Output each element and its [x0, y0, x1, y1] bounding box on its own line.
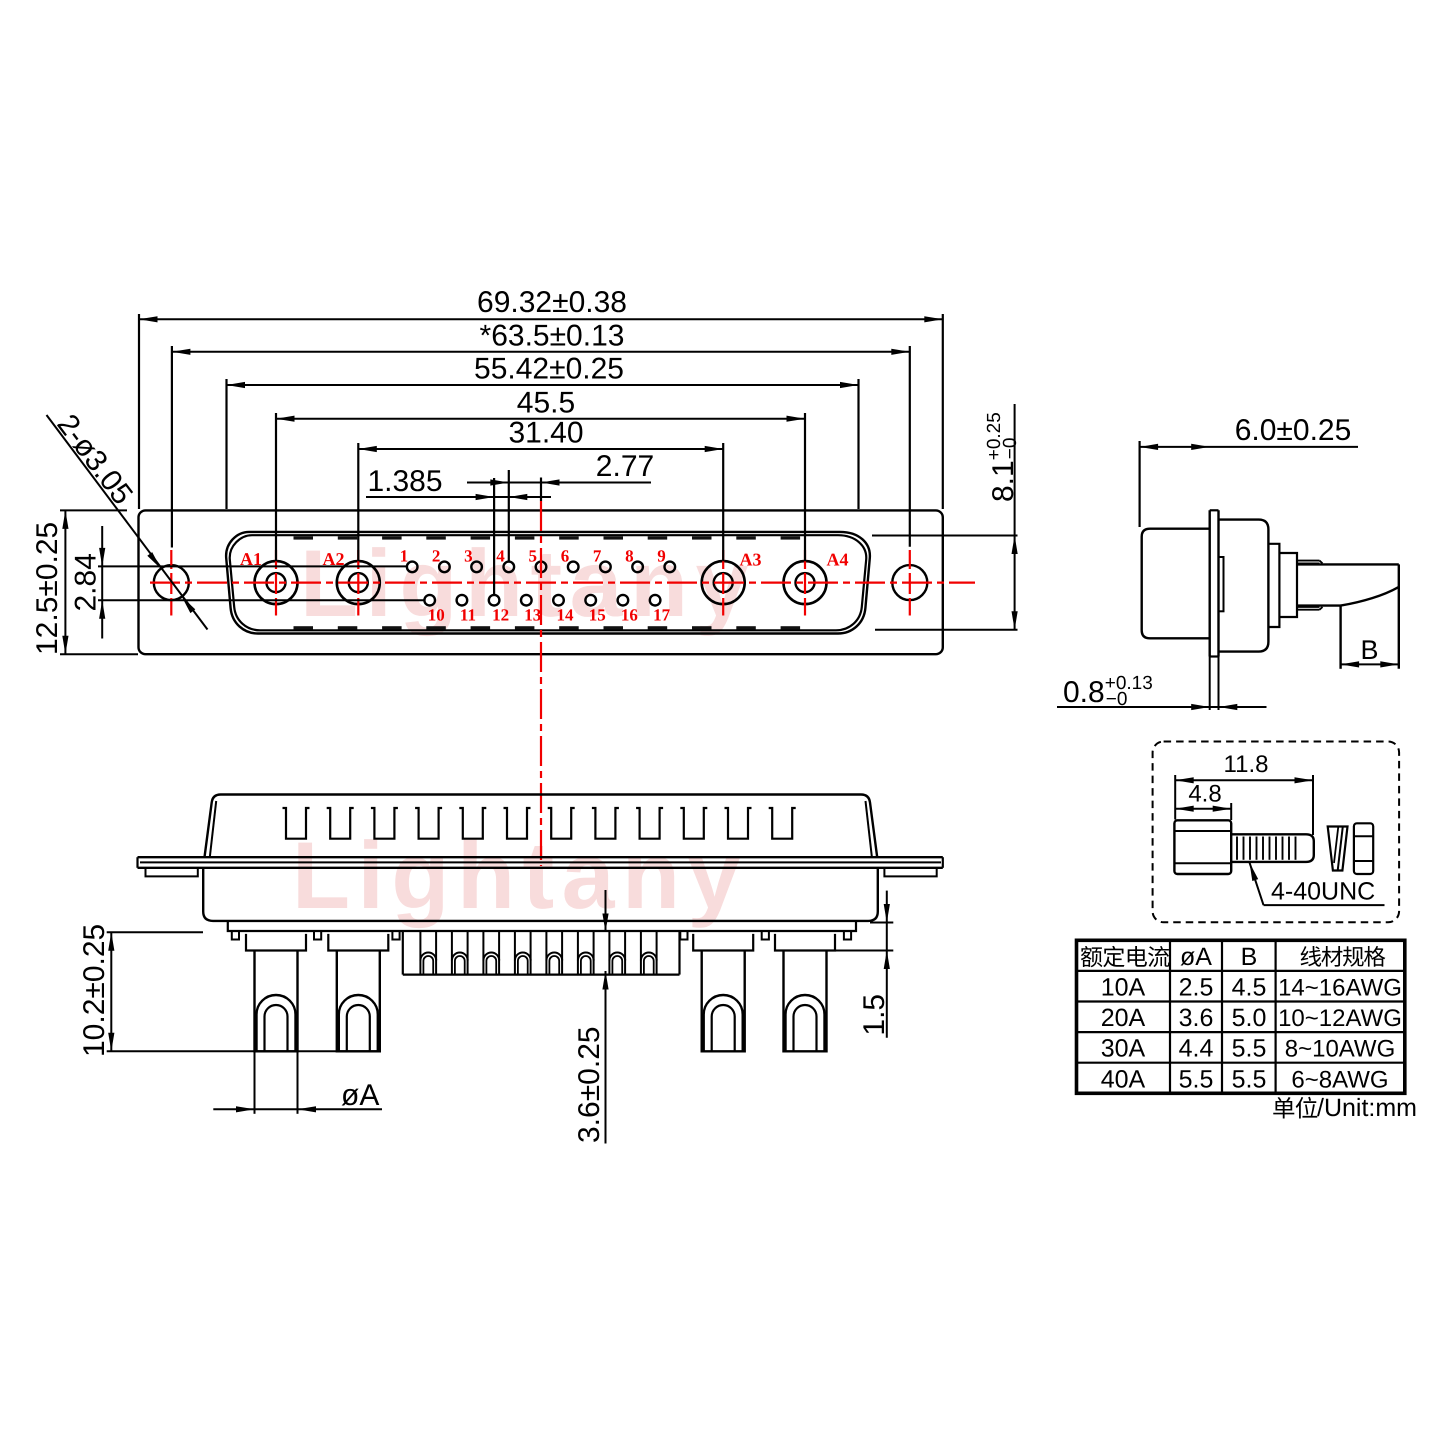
svg-text:16: 16	[621, 606, 638, 625]
svg-text:4-40UNC: 4-40UNC	[1271, 878, 1375, 906]
svg-text:B: B	[1241, 943, 1258, 971]
svg-text:20A: 20A	[1101, 1004, 1146, 1032]
svg-text:45.5: 45.5	[517, 387, 575, 420]
svg-text:3.6±0.25: 3.6±0.25	[573, 1026, 606, 1143]
svg-text:5.5: 5.5	[1232, 1035, 1267, 1063]
svg-text:12.5±0.25: 12.5±0.25	[31, 522, 64, 655]
svg-text:2.5: 2.5	[1179, 974, 1214, 1002]
svg-text:A4: A4	[827, 550, 849, 570]
svg-text:2-ø3.05: 2-ø3.05	[50, 408, 139, 510]
svg-text:10: 10	[428, 606, 445, 625]
svg-text:0.8+0.13−0: 0.8+0.13−0	[1063, 673, 1153, 710]
svg-text:6~8AWG: 6~8AWG	[1291, 1066, 1388, 1093]
svg-text:5.0: 5.0	[1232, 1004, 1267, 1032]
svg-text:11.8: 11.8	[1224, 751, 1269, 778]
svg-text:1.5: 1.5	[858, 994, 891, 1036]
svg-text:10A: 10A	[1101, 974, 1146, 1002]
svg-text:1.385: 1.385	[367, 465, 442, 498]
svg-text:14: 14	[557, 606, 575, 625]
svg-text:8~10AWG: 8~10AWG	[1285, 1036, 1396, 1063]
svg-text:13: 13	[524, 606, 541, 625]
svg-text:*63.5±0.13: *63.5±0.13	[480, 320, 625, 353]
svg-text:2.77: 2.77	[596, 450, 654, 483]
svg-text:2: 2	[432, 547, 441, 566]
svg-text:3: 3	[464, 547, 473, 566]
svg-text:31.40: 31.40	[508, 417, 583, 450]
svg-text:6.0±0.25: 6.0±0.25	[1235, 414, 1352, 447]
svg-text:6: 6	[561, 547, 570, 566]
svg-text:55.42±0.25: 55.42±0.25	[474, 353, 624, 386]
svg-text:øA: øA	[1180, 943, 1212, 971]
svg-text:11: 11	[460, 606, 476, 625]
svg-text:9: 9	[657, 547, 666, 566]
svg-text:4.5: 4.5	[1232, 974, 1267, 1002]
svg-text:5: 5	[529, 547, 538, 566]
svg-text:17: 17	[653, 606, 671, 625]
svg-text:3.6: 3.6	[1179, 1004, 1214, 1032]
svg-text:8: 8	[625, 547, 634, 566]
svg-text:A3: A3	[740, 550, 762, 570]
svg-text:4.4: 4.4	[1179, 1035, 1214, 1063]
svg-text:40A: 40A	[1101, 1065, 1146, 1093]
svg-text:69.32±0.38: 69.32±0.38	[477, 286, 627, 319]
svg-text:7: 7	[593, 547, 602, 566]
svg-text:12: 12	[492, 606, 509, 625]
svg-text:øA: øA	[341, 1079, 379, 1112]
svg-text:5.5: 5.5	[1179, 1065, 1214, 1093]
svg-text:10~12AWG: 10~12AWG	[1278, 1005, 1402, 1032]
svg-text:/Unit:mm: /Unit:mm	[1317, 1094, 1417, 1122]
svg-text:5.5: 5.5	[1232, 1065, 1267, 1093]
svg-text:2.84: 2.84	[70, 553, 103, 611]
svg-text:4.8: 4.8	[1188, 781, 1221, 808]
svg-text:B: B	[1360, 635, 1378, 665]
svg-text:30A: 30A	[1101, 1035, 1146, 1063]
svg-text:14~16AWG: 14~16AWG	[1278, 975, 1402, 1002]
svg-text:15: 15	[589, 606, 606, 625]
svg-text:1: 1	[400, 547, 409, 566]
svg-text:10.2±0.25: 10.2±0.25	[78, 924, 111, 1057]
svg-text:4: 4	[496, 547, 505, 566]
